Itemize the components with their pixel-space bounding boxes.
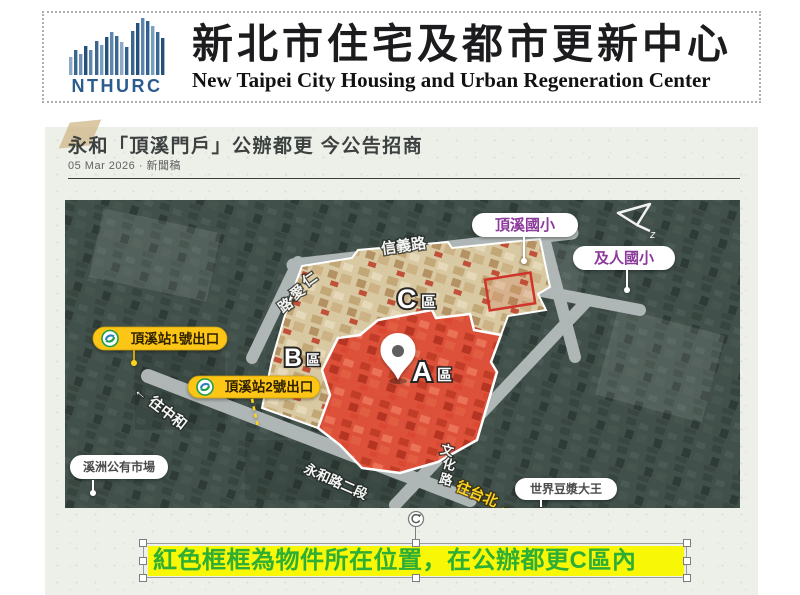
svg-text:區: 區 (421, 294, 436, 311)
metro-logo-icon (102, 331, 118, 347)
annotation-textbox[interactable]: 紅色框框為物件所在位置，在公辦都更C區內 (143, 543, 687, 578)
selection-handle-mid-right[interactable] (683, 557, 691, 565)
title-divider (68, 178, 740, 179)
selection-handle-bottom-left[interactable] (139, 574, 147, 582)
metro-logo-icon (197, 379, 213, 395)
selection-handle-bottom-center[interactable] (412, 574, 420, 582)
map-image[interactable]: 信義路 仁 愛 路 ← 往中和 永和路二段 文 化 路 往台北 → C 區 (65, 200, 740, 508)
svg-text:區: 區 (306, 352, 320, 368)
svg-text:A: A (412, 356, 432, 387)
svg-text:溪洲公有市場: 溪洲公有市場 (83, 459, 155, 474)
selection-handle-mid-left[interactable] (139, 557, 147, 565)
aerial-map-svg: 信義路 仁 愛 路 ← 往中和 永和路二段 文 化 路 往台北 → C 區 (65, 200, 740, 508)
rotation-handle[interactable] (407, 510, 425, 528)
article-title: 永和「頂溪門戶」公辦都更 今公告招商 (68, 131, 423, 158)
nthurc-logo: NTHURC (58, 17, 176, 97)
org-title-zh: 新北市住宅及都市更新中心 (192, 21, 732, 67)
selection-handle-top-right[interactable] (683, 539, 691, 547)
svg-text:頂溪站2號出口: 頂溪站2號出口 (225, 379, 314, 395)
property-location-red-frame (485, 273, 535, 311)
page: NTHURC 新北市住宅及都市更新中心 New Taipei City Hous… (0, 0, 800, 595)
selection-handle-top-left[interactable] (139, 539, 147, 547)
svg-text:及人國小: 及人國小 (594, 250, 654, 267)
svg-text:頂溪站1號出口: 頂溪站1號出口 (131, 331, 220, 347)
annotation-text[interactable]: 紅色框框為物件所在位置，在公辦都更C區內 (153, 547, 636, 575)
skyline-bars-icon (69, 17, 165, 75)
svg-text:B: B (284, 344, 302, 372)
article-date: 05 Mar 2026 · 新聞稿 (68, 157, 181, 173)
article-card: 永和「頂溪門戶」公辦都更 今公告招商 05 Mar 2026 · 新聞稿 (45, 127, 758, 595)
svg-text:C: C (397, 284, 417, 314)
org-header: NTHURC 新北市住宅及都市更新中心 New Taipei City Hous… (42, 11, 761, 103)
svg-text:世界豆漿大王: 世界豆漿大王 (530, 481, 602, 496)
selection-handle-top-center[interactable] (412, 539, 420, 547)
selection-handle-bottom-right[interactable] (683, 574, 691, 582)
svg-text:頂溪國小: 頂溪國小 (495, 216, 555, 234)
org-title-en: New Taipei City Housing and Urban Regene… (192, 67, 732, 93)
svg-text:區: 區 (437, 367, 452, 384)
logo-wordmark: NTHURC (58, 76, 176, 97)
svg-text:z: z (649, 229, 656, 241)
